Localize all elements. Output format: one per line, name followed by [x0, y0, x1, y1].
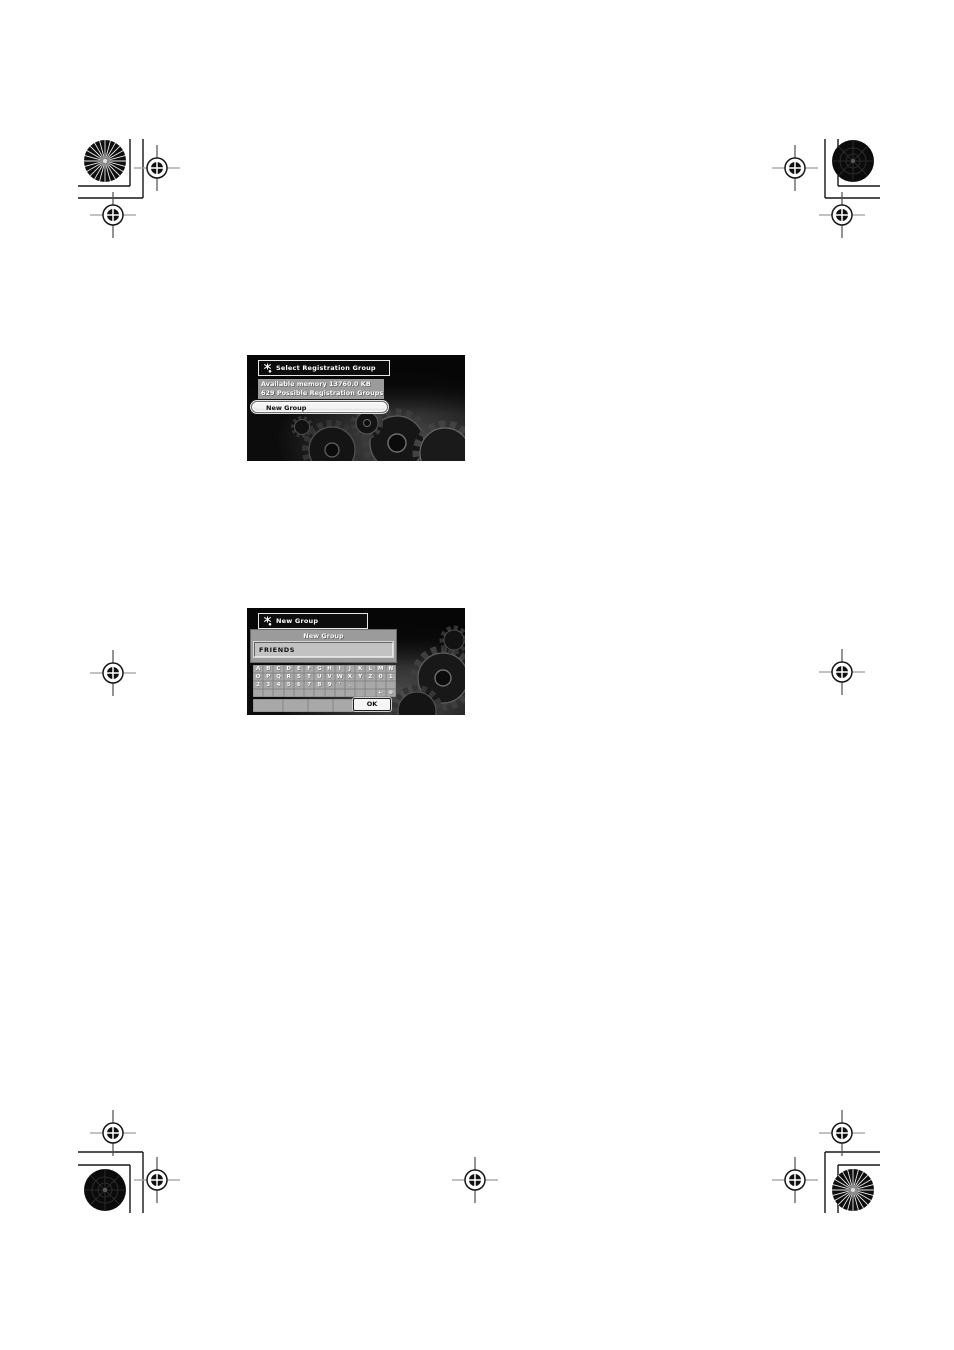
keyboard-key[interactable]: A	[253, 665, 263, 673]
keyboard-key[interactable]	[253, 689, 263, 697]
starburst-circle-icon	[832, 1169, 874, 1211]
registration-target	[819, 192, 865, 238]
space-key[interactable]	[308, 699, 333, 712]
screen2-title-bar: New Group	[258, 613, 368, 629]
keyboard-key[interactable]: 3	[263, 681, 273, 689]
keyboard-key[interactable]: I	[335, 665, 345, 673]
screenshot-new-group-keyboard: New Group New Group FRIENDS ABCDEFGHIJKL…	[247, 608, 465, 715]
print-marks	[0, 0, 954, 1350]
screenshot-select-registration-group: Select Registration Group Available memo…	[247, 355, 465, 461]
possible-groups-text: 629 Possible Registration Groups	[261, 389, 384, 398]
keyboard-key[interactable]: D	[284, 665, 294, 673]
keyboard-key[interactable]	[386, 681, 396, 689]
on-screen-keyboard: ABCDEFGHIJKLMN OPQRSTUVWXYZ01 23456789'.…	[253, 665, 396, 697]
keyboard-key[interactable]: C	[273, 665, 283, 673]
keyboard-key[interactable]: K	[355, 665, 365, 673]
keyboard-key[interactable]: S	[294, 673, 304, 681]
manual-page: Select Registration Group Available memo…	[0, 0, 954, 1350]
keyboard-key[interactable]: '	[335, 681, 345, 689]
space-key[interactable]	[333, 699, 353, 712]
keyboard-key[interactable]	[284, 689, 294, 697]
keyboard-key[interactable]: X	[345, 673, 355, 681]
keyboard-key[interactable]: P	[263, 673, 273, 681]
key-icon	[263, 616, 272, 626]
keyboard-key[interactable]: .	[345, 681, 355, 689]
keyboard-key[interactable]	[263, 689, 273, 697]
keyboard-key[interactable]	[304, 689, 314, 697]
keyboard-key[interactable]: B	[263, 665, 273, 673]
keyboard-key[interactable]: 6	[294, 681, 304, 689]
keyboard-key[interactable]: L	[365, 665, 375, 673]
dark-circle-icon	[832, 140, 874, 182]
keyboard-key[interactable]	[365, 689, 375, 697]
registration-target	[772, 145, 818, 191]
keyboard-row-2: OPQRSTUVWXYZ01	[253, 673, 396, 681]
keyboard-key[interactable]	[325, 689, 335, 697]
keyboard-key[interactable]	[355, 681, 365, 689]
crop-lines-top-right	[825, 139, 880, 198]
new-group-button[interactable]: New Group	[251, 401, 388, 413]
registration-target	[819, 649, 865, 695]
keyboard-key[interactable]	[365, 681, 375, 689]
registration-target	[134, 145, 180, 191]
keyboard-row-4: ←⊗	[253, 689, 396, 697]
keyboard-row-1: ABCDEFGHIJKLMN	[253, 665, 396, 673]
ok-button[interactable]: OK	[353, 698, 391, 711]
registration-target	[819, 1110, 865, 1156]
keyboard-key[interactable]: J	[345, 665, 355, 673]
registration-target	[772, 1157, 818, 1203]
keyboard-key[interactable]: 4	[273, 681, 283, 689]
crop-lines-top-left	[78, 139, 143, 198]
keyboard-key[interactable]: Z	[365, 673, 375, 681]
keyboard-key[interactable]: W	[335, 673, 345, 681]
keyboard-key[interactable]: 7	[304, 681, 314, 689]
keyboard-key[interactable]: 8	[314, 681, 324, 689]
starburst-circle-icon	[84, 140, 126, 182]
keyboard-key[interactable]: 1	[386, 673, 396, 681]
keyboard-key[interactable]: R	[284, 673, 294, 681]
keyboard-key[interactable]: E	[294, 665, 304, 673]
keyboard-key[interactable]: F	[304, 665, 314, 673]
keyboard-key[interactable]: U	[314, 673, 324, 681]
keyboard-space-row	[253, 699, 353, 712]
available-memory-text: Available memory 13760.0 KB	[261, 380, 384, 389]
keyboard-key[interactable]	[335, 689, 345, 697]
registration-target	[90, 1110, 136, 1156]
keyboard-key[interactable]: ←	[376, 689, 386, 697]
registration-target	[452, 1157, 498, 1203]
keyboard-key[interactable]: M	[376, 665, 386, 673]
keyboard-key[interactable]: ⊗	[386, 689, 396, 697]
screen1-title-bar: Select Registration Group	[258, 360, 390, 376]
crop-lines-bottom-left	[78, 1152, 143, 1213]
crop-lines-bottom-right	[825, 1152, 880, 1213]
keyboard-key[interactable]: Y	[355, 673, 365, 681]
registration-target	[90, 192, 136, 238]
keyboard-key[interactable]: H	[325, 665, 335, 673]
space-key[interactable]	[253, 699, 283, 712]
screen2-title: New Group	[276, 617, 318, 625]
keyboard-key[interactable]: O	[253, 673, 263, 681]
new-group-panel: New Group FRIENDS	[251, 630, 396, 662]
keyboard-key[interactable]	[355, 689, 365, 697]
keyboard-key[interactable]: V	[325, 673, 335, 681]
keyboard-key[interactable]: 9	[325, 681, 335, 689]
keyboard-key[interactable]: 2	[253, 681, 263, 689]
group-name-input[interactable]: FRIENDS	[254, 642, 393, 657]
keyboard-key[interactable]: N	[386, 665, 396, 673]
keyboard-key[interactable]	[376, 681, 386, 689]
space-key[interactable]	[283, 699, 308, 712]
registration-target	[90, 650, 136, 696]
keyboard-key[interactable]	[273, 689, 283, 697]
keyboard-key[interactable]: 0	[376, 673, 386, 681]
keyboard-row-3: 23456789'.	[253, 681, 396, 689]
keyboard-key[interactable]: G	[314, 665, 324, 673]
keyboard-key[interactable]: T	[304, 673, 314, 681]
keyboard-key[interactable]	[294, 689, 304, 697]
dark-circle-icon	[84, 1169, 126, 1211]
keyboard-key[interactable]	[314, 689, 324, 697]
memory-info-box: Available memory 13760.0 KB 629 Possible…	[258, 379, 384, 399]
key-icon	[263, 363, 272, 373]
registration-target	[134, 1157, 180, 1203]
keyboard-key[interactable]: 5	[284, 681, 294, 689]
keyboard-key[interactable]: Q	[273, 673, 283, 681]
screen1-title: Select Registration Group	[276, 364, 376, 372]
panel-header: New Group	[251, 630, 396, 641]
keyboard-key[interactable]	[345, 689, 355, 697]
